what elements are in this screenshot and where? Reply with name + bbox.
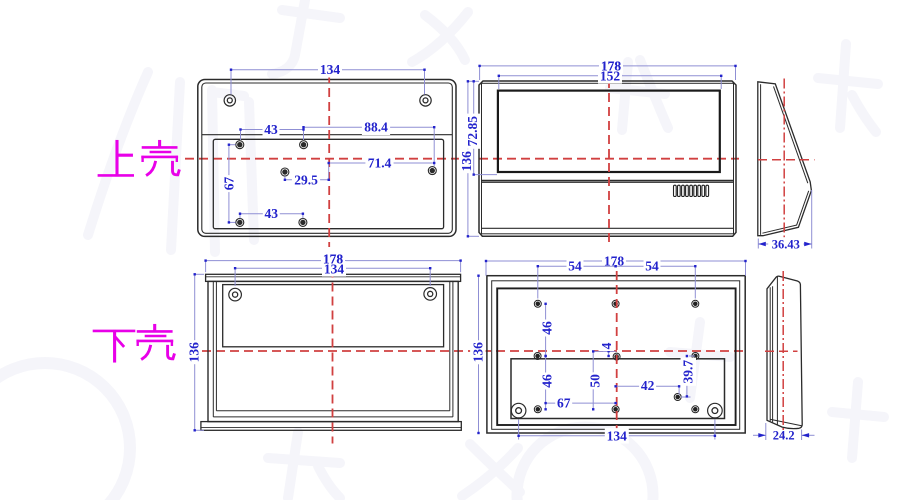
svg-text:36.43: 36.43 — [772, 237, 800, 251]
svg-text:178: 178 — [601, 58, 622, 73]
svg-text:136: 136 — [459, 151, 474, 172]
svg-text:136: 136 — [186, 342, 201, 363]
svg-text:4: 4 — [599, 342, 614, 349]
svg-text:134: 134 — [607, 428, 628, 443]
svg-text:134: 134 — [320, 62, 341, 77]
svg-text:46: 46 — [540, 374, 555, 388]
svg-text:50: 50 — [588, 374, 603, 388]
svg-text:43: 43 — [264, 122, 278, 137]
svg-text:71.4: 71.4 — [368, 156, 392, 171]
svg-text:72.85: 72.85 — [465, 116, 480, 147]
svg-text:54: 54 — [568, 259, 582, 274]
svg-text:54: 54 — [645, 259, 659, 274]
svg-text:46: 46 — [540, 321, 555, 335]
svg-text:178: 178 — [323, 252, 344, 267]
svg-text:88.4: 88.4 — [364, 120, 388, 135]
svg-text:67: 67 — [557, 396, 571, 411]
svg-text:39.7: 39.7 — [681, 360, 696, 384]
svg-text:136: 136 — [470, 342, 485, 363]
svg-text:43: 43 — [265, 206, 279, 221]
svg-text:24.2: 24.2 — [773, 429, 795, 443]
svg-text:29.5: 29.5 — [294, 172, 318, 187]
svg-text:67: 67 — [221, 177, 236, 191]
svg-text:42: 42 — [641, 378, 655, 393]
